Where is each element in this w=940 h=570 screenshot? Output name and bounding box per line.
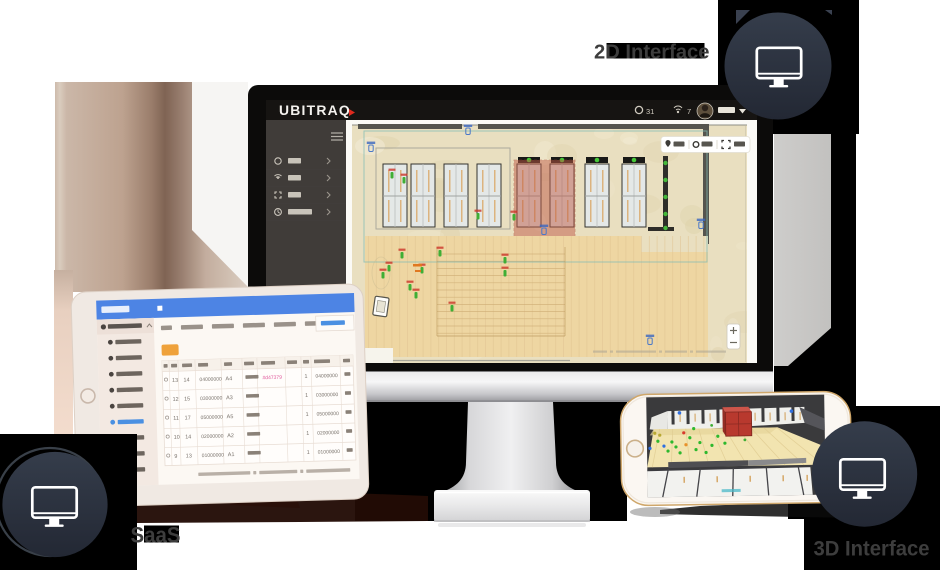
svg-text:03000000: 03000000 <box>316 392 339 399</box>
svg-text:UBITRAQ: UBITRAQ <box>279 103 351 118</box>
svg-text:1: 1 <box>304 374 307 380</box>
svg-text:7: 7 <box>687 107 691 116</box>
svg-text:A1: A1 <box>228 452 235 458</box>
svg-text:1: 1 <box>307 450 310 456</box>
svg-text:05000000: 05000000 <box>317 411 340 418</box>
svg-text:31: 31 <box>646 107 654 116</box>
svg-text:A3: A3 <box>226 395 233 401</box>
svg-text:11: 11 <box>173 416 179 422</box>
svg-text:1: 1 <box>305 393 308 399</box>
svg-text:10: 10 <box>174 435 180 441</box>
svg-text:01000000: 01000000 <box>318 449 341 456</box>
svg-text:13: 13 <box>172 378 178 384</box>
svg-text:05000000: 05000000 <box>201 414 224 421</box>
svg-text:15: 15 <box>184 396 190 402</box>
svg-text:9: 9 <box>174 454 177 460</box>
svg-text:02000000: 02000000 <box>317 430 340 437</box>
svg-text:13: 13 <box>186 453 192 459</box>
svg-text:04000000: 04000000 <box>199 376 222 383</box>
svg-text:A2: A2 <box>227 433 234 439</box>
svg-text:A4: A4 <box>225 376 232 382</box>
svg-text:#d47379: #d47379 <box>262 375 282 382</box>
svg-text:SaaS: SaaS <box>131 523 181 548</box>
svg-text:1: 1 <box>306 431 309 437</box>
svg-text:14: 14 <box>183 377 189 383</box>
svg-text:14: 14 <box>185 434 191 440</box>
svg-text:04000000: 04000000 <box>315 373 338 380</box>
svg-text:02000000: 02000000 <box>201 433 224 440</box>
svg-text:2D Interface: 2D Interface <box>594 42 710 64</box>
svg-text:3D Interface: 3D Interface <box>814 537 930 560</box>
svg-text:1: 1 <box>306 412 309 418</box>
svg-text:01000000: 01000000 <box>202 452 225 459</box>
svg-text:17: 17 <box>185 415 191 421</box>
svg-text:12: 12 <box>173 397 179 403</box>
svg-text:A5: A5 <box>227 414 234 420</box>
svg-text:03000000: 03000000 <box>200 395 223 402</box>
